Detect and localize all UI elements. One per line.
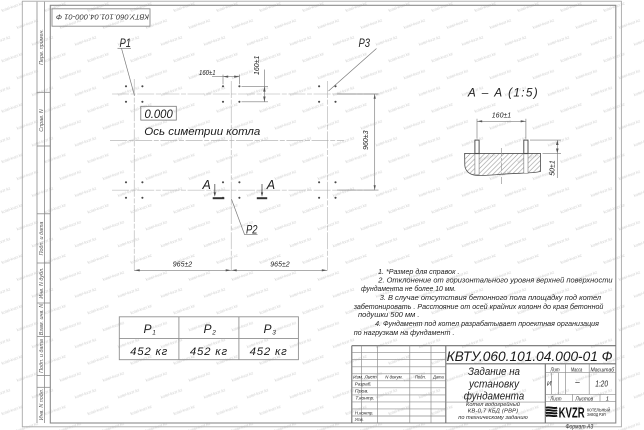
svg-text:подушки 500 мм .: подушки 500 мм . xyxy=(358,310,420,319)
svg-text:Формат А3: Формат А3 xyxy=(565,423,593,430)
svg-text:452 кг: 452 кг xyxy=(130,346,168,358)
svg-text:Подп.: Подп. xyxy=(415,375,426,381)
svg-text:Масса: Масса xyxy=(571,368,583,374)
svg-text:1: 1 xyxy=(152,330,156,337)
svg-text:Взам. инв. N: Взам. инв. N xyxy=(39,304,45,336)
svg-text:Подп. и дата: Подп. и дата xyxy=(39,339,45,373)
svg-text:Разраб.: Разраб. xyxy=(355,382,372,388)
svg-text:N докум.: N докум. xyxy=(385,375,403,381)
svg-text:И: И xyxy=(547,380,552,387)
svg-text:0.000: 0.000 xyxy=(144,107,173,121)
svg-text:Задание на: Задание на xyxy=(468,366,520,378)
svg-text:Инв. N подл.: Инв. N подл. xyxy=(39,389,45,421)
svg-text:Подп. и дата: Подп. и дата xyxy=(39,222,45,256)
svg-text:965±2: 965±2 xyxy=(270,261,290,268)
svg-text:160±1: 160±1 xyxy=(254,55,261,75)
svg-text:ЗАВОД РЭП: ЗАВОД РЭП xyxy=(587,412,606,417)
svg-text:P: P xyxy=(204,322,212,336)
svg-text:160±1: 160±1 xyxy=(199,70,216,77)
svg-text:P3: P3 xyxy=(359,36,371,50)
svg-text:P: P xyxy=(144,322,152,336)
svg-text:–: – xyxy=(574,377,580,386)
svg-text:по нагрузкам на фундамент .: по нагрузкам на фундамент . xyxy=(354,328,455,337)
svg-text:3: 3 xyxy=(272,330,276,337)
svg-text:Перв. примен.: Перв. примен. xyxy=(39,29,45,65)
svg-text:Листов: Листов xyxy=(575,396,594,402)
svg-text:Лит: Лит xyxy=(550,368,560,374)
svg-text:Инв. N дубл.: Инв. N дубл. xyxy=(39,267,45,298)
svg-text:452 кг: 452 кг xyxy=(250,346,288,358)
svg-text:160±1: 160±1 xyxy=(492,113,512,120)
svg-text:Справ. N: Справ. N xyxy=(39,109,45,132)
svg-text:КВ-0,7 КБД (РВР): КВ-0,7 КБД (РВР) xyxy=(468,409,518,415)
svg-text:фундамента не более 10 мм.: фундамента не более 10 мм. xyxy=(361,284,456,293)
svg-text:А: А xyxy=(202,178,211,192)
svg-text:P1: P1 xyxy=(120,36,132,50)
svg-text:4. Фундамент под котел разраба: 4. Фундамент под котел разрабатывает про… xyxy=(375,319,599,328)
svg-text:КВТУ.060.101.04.000-01 Ф: КВТУ.060.101.04.000-01 Ф xyxy=(56,12,149,21)
svg-text:Масштаб: Масштаб xyxy=(590,368,614,374)
svg-text:2: 2 xyxy=(211,330,216,337)
svg-text:Утв.: Утв. xyxy=(355,417,364,423)
svg-text:50±1: 50±1 xyxy=(550,160,557,176)
svg-text:3. В случае отсутствия бетонно: 3. В случае отсутствия бетонного пола пл… xyxy=(380,293,602,302)
svg-text:452 кг: 452 кг xyxy=(190,346,228,358)
svg-text:установку: установку xyxy=(468,378,520,390)
svg-text:Ось симетрии котла: Ось симетрии котла xyxy=(144,126,260,138)
svg-text:1: 1 xyxy=(606,396,609,402)
svg-text:Пров.: Пров. xyxy=(355,389,369,395)
svg-text:Изм. Лист: Изм. Лист xyxy=(353,375,377,381)
svg-text:P: P xyxy=(264,322,272,336)
svg-text:Лист: Лист xyxy=(550,396,562,402)
svg-text:1:20: 1:20 xyxy=(595,379,608,388)
svg-text:Н.контр.: Н.контр. xyxy=(355,411,374,417)
svg-text:А: А xyxy=(266,178,275,192)
svg-text:965±2: 965±2 xyxy=(173,261,193,268)
svg-text:КВТУ.060.101.04.000-01 Ф: КВТУ.060.101.04.000-01 Ф xyxy=(447,348,613,364)
svg-text:Дата: Дата xyxy=(432,375,444,381)
svg-text:KVZR: KVZR xyxy=(559,405,585,421)
svg-text:по техническому заданию: по техническому заданию xyxy=(458,415,528,421)
svg-text:Котел водогрейный: Котел водогрейный xyxy=(466,401,521,408)
svg-text:Т.контр.: Т.контр. xyxy=(355,396,374,402)
svg-text:960±3: 960±3 xyxy=(363,130,370,150)
